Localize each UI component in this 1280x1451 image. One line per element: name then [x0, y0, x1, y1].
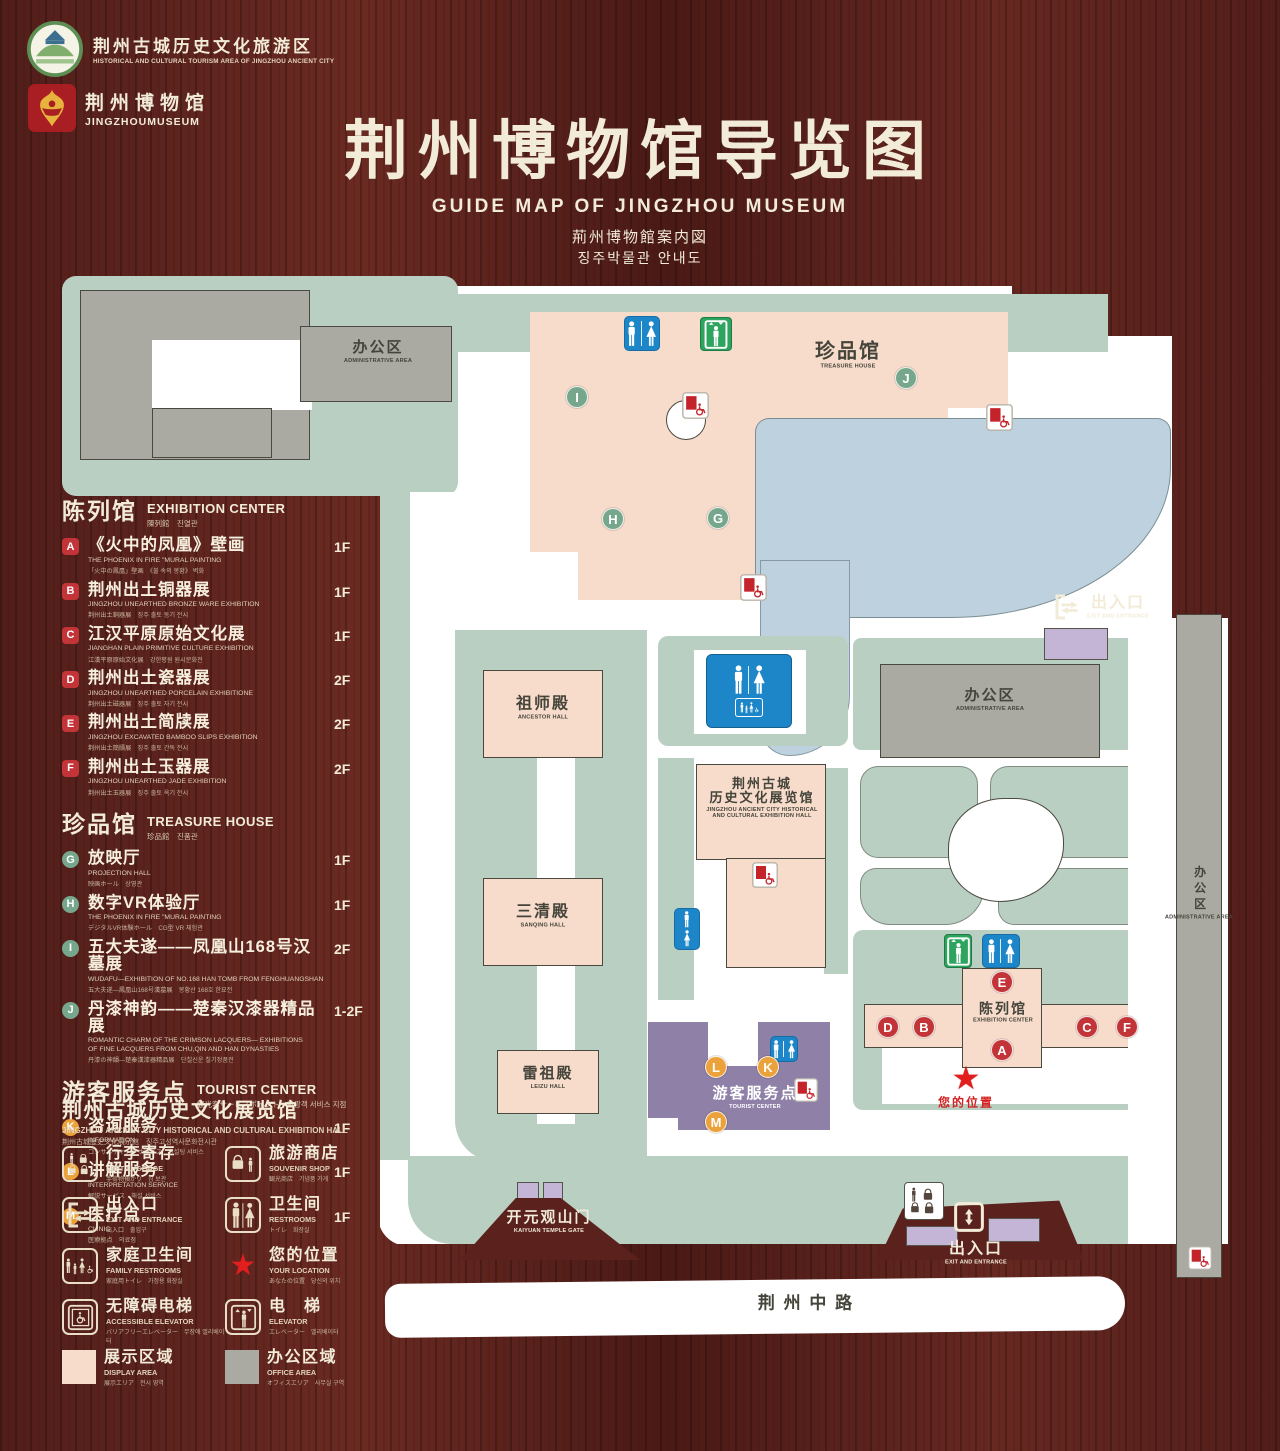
map-marker-B: B [913, 1016, 935, 1038]
map-marker-C: C [1076, 1016, 1098, 1038]
museum-map: ★ 办公区ADMINISTRATIVE AREA珍品馆TREASURE HOUS… [0, 0, 1280, 1451]
exit-icon-bottom [954, 1202, 984, 1232]
exh-hall-grounds-right [824, 768, 848, 974]
map-marker-M: M [705, 1111, 727, 1133]
admin-courtyard [152, 340, 312, 410]
west-green-strip [380, 492, 410, 1160]
admin-mid-building [880, 664, 1100, 758]
gate-building-right [1044, 628, 1108, 660]
accessible-elevator-icon-4 [752, 862, 778, 888]
map-marker-E: E [991, 971, 1013, 993]
your-location-star: ★ [952, 1062, 981, 1094]
south-gate-right [988, 1218, 1040, 1242]
accessible-elevator-icon-5 [794, 1078, 818, 1102]
restrooms-family-icon [706, 654, 792, 728]
accessible-elevator-icon-1 [682, 392, 709, 419]
exh-hall-grounds-left [658, 758, 694, 1000]
left-luggage-icon-map [904, 1182, 944, 1220]
west-path [410, 492, 456, 1160]
road-jingzhou-middle [385, 1276, 1126, 1338]
map-marker-A: A [991, 1039, 1013, 1061]
restrooms-icon-exh-center [982, 934, 1020, 968]
sanqing-hall-building [483, 878, 603, 966]
map-marker-F: F [1116, 1016, 1138, 1038]
map-marker-H: H [602, 508, 624, 530]
map-marker-D: D [877, 1016, 899, 1038]
map-marker-K: K [757, 1056, 779, 1078]
map-marker-I: I [566, 386, 588, 408]
map-marker-G: G [707, 507, 729, 529]
elevator-icon-treasure [700, 317, 732, 351]
exhibition-hall-building [696, 764, 826, 860]
admin-right-strip-building [1176, 614, 1222, 1278]
restrooms-icon-treasure [624, 316, 660, 351]
map-marker-J: J [895, 367, 917, 389]
leizu-hall-building [497, 1050, 599, 1114]
ancestor-hall-building [483, 670, 603, 758]
accessible-elevator-icon-3 [740, 574, 767, 601]
admin-topleft-annex [152, 408, 272, 458]
accessible-elevator-icon-6 [1188, 1246, 1212, 1270]
south-gate-left [906, 1226, 958, 1246]
east-path [1128, 616, 1172, 1244]
restrooms-icon-central [674, 908, 700, 950]
admin-topleft-wing [300, 326, 452, 402]
exit-icon-right [1054, 594, 1080, 620]
accessible-elevator-icon-2 [986, 404, 1013, 431]
elevator-icon-exh-center [944, 934, 972, 968]
map-marker-L: L [705, 1056, 727, 1078]
